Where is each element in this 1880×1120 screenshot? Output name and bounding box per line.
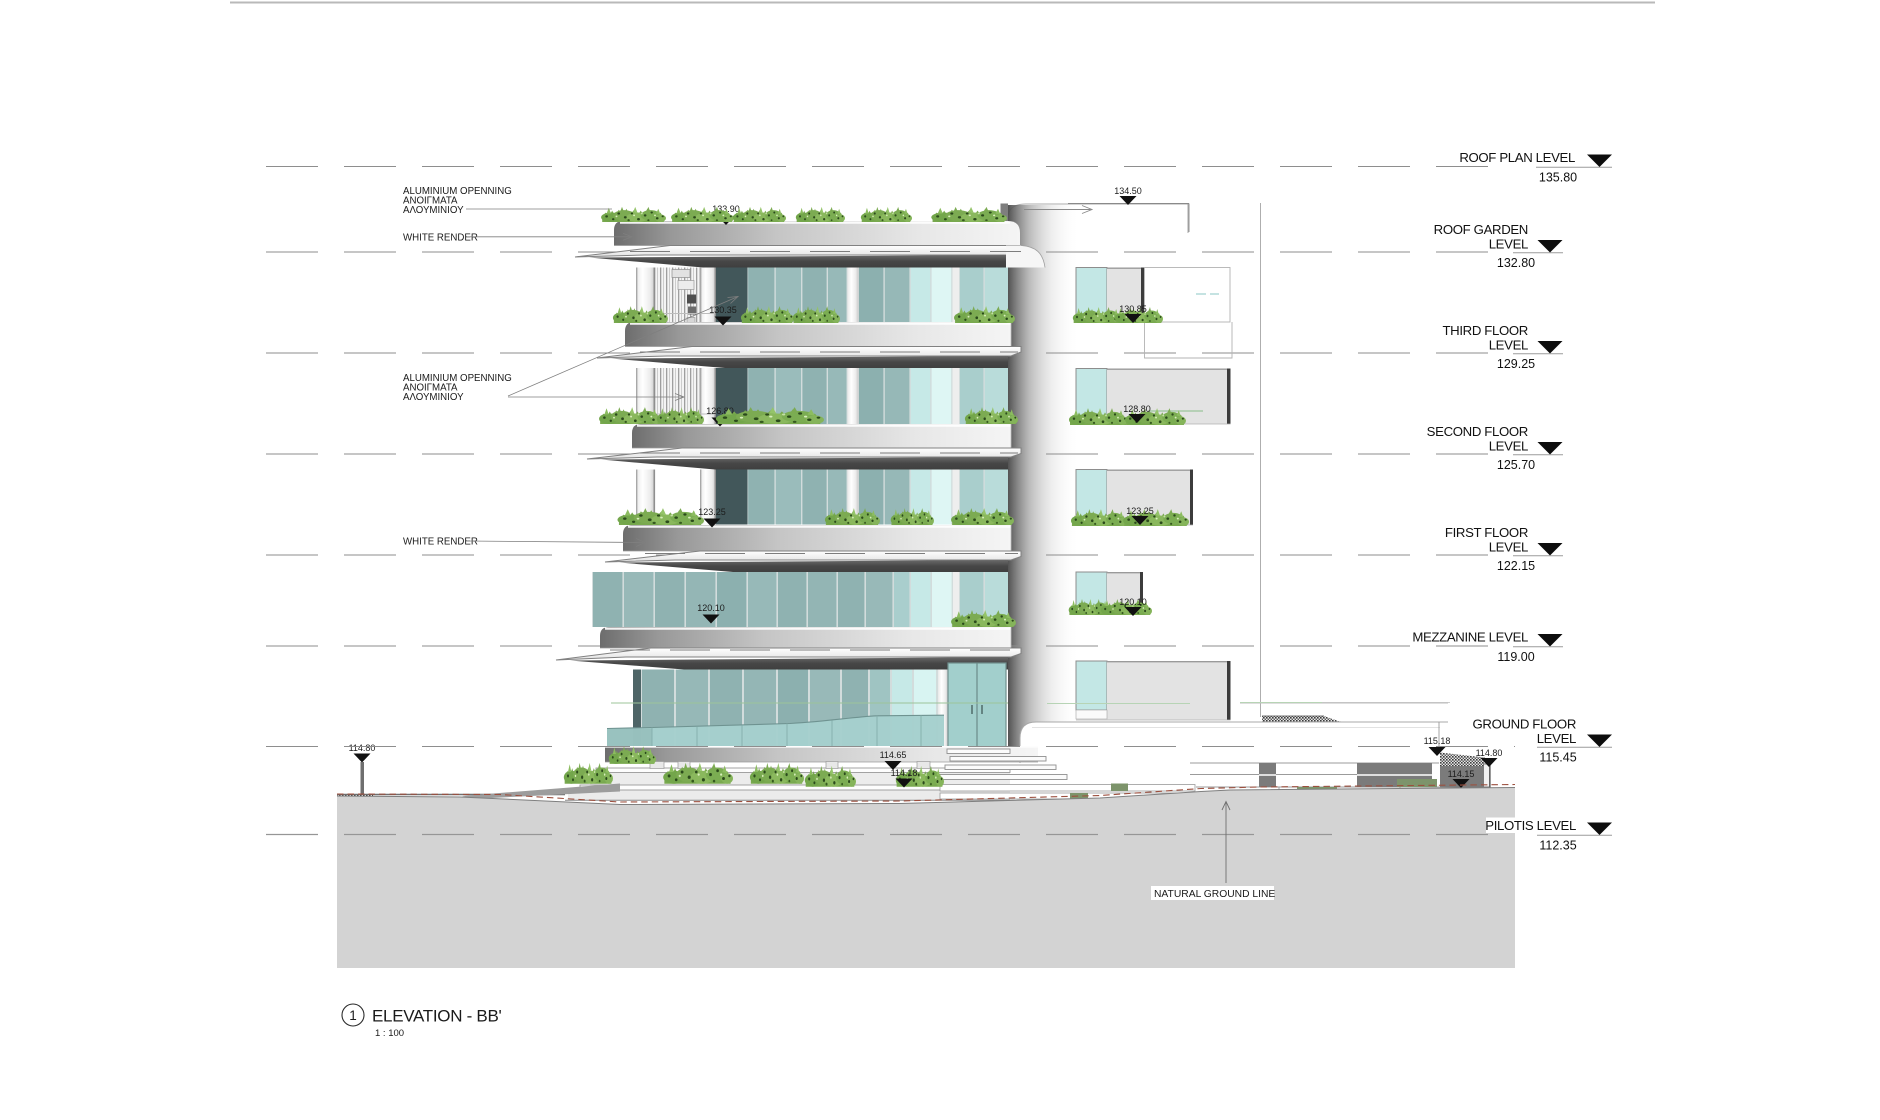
svg-text:114.80: 114.80 [349,743,376,753]
svg-text:119.00: 119.00 [1497,650,1534,664]
svg-text:134.50: 134.50 [1114,186,1142,196]
svg-text:130.85: 130.85 [1119,304,1147,314]
svg-text:114.80: 114.80 [1476,748,1503,758]
svg-text:122.15: 122.15 [1497,559,1535,573]
svg-text:LEVEL: LEVEL [1537,731,1576,746]
svg-text:ROOF PLAN LEVEL: ROOF PLAN LEVEL [1459,150,1575,165]
svg-text:PILOTIS LEVEL: PILOTIS LEVEL [1485,818,1576,833]
svg-text:123.25: 123.25 [698,507,726,517]
svg-text:135.80: 135.80 [1539,171,1577,185]
svg-text:1 : 100: 1 : 100 [375,1028,404,1039]
svg-text:1: 1 [349,1008,357,1023]
svg-text:132.80: 132.80 [1497,256,1535,270]
svg-text:ROOF GARDEN: ROOF GARDEN [1434,222,1528,237]
svg-text:130.35: 130.35 [709,305,737,315]
svg-text:128.80: 128.80 [1123,404,1151,414]
svg-text:SECOND FLOOR: SECOND FLOOR [1427,424,1528,439]
svg-text:120.10: 120.10 [1119,597,1147,607]
svg-text:115.45: 115.45 [1539,751,1576,765]
svg-text:125.70: 125.70 [1497,458,1535,472]
svg-text:LEVEL: LEVEL [1489,237,1528,252]
svg-text:THIRD FLOOR: THIRD FLOOR [1442,323,1528,338]
svg-text:129.25: 129.25 [1497,357,1535,371]
svg-text:WHITE RENDER: WHITE RENDER [403,537,478,548]
svg-text:MEZZANINE LEVEL: MEZZANINE LEVEL [1412,630,1528,645]
svg-text:123.25: 123.25 [1126,506,1154,516]
svg-text:LEVEL: LEVEL [1489,540,1528,555]
svg-text:114.65: 114.65 [880,750,907,760]
svg-text:120.10: 120.10 [697,603,725,613]
svg-text:FIRST FLOOR: FIRST FLOOR [1445,525,1528,540]
svg-text:114.15: 114.15 [1448,769,1475,779]
svg-text:115.18: 115.18 [1424,736,1451,746]
svg-text:GROUND FLOOR: GROUND FLOOR [1472,717,1576,732]
svg-text:LEVEL: LEVEL [1489,338,1528,353]
svg-text:LEVEL: LEVEL [1489,439,1528,454]
svg-text:112.35: 112.35 [1539,839,1576,853]
svg-text:ΑΛΟΥΜΙΝΙΟΥ: ΑΛΟΥΜΙΝΙΟΥ [403,392,464,403]
svg-text:NATURAL GROUND LINE: NATURAL GROUND LINE [1154,889,1275,900]
svg-text:ΑΛΟΥΜΙΝΙΟΥ: ΑΛΟΥΜΙΝΙΟΥ [403,205,464,216]
svg-text:ELEVATION - BB': ELEVATION - BB' [372,1007,501,1026]
svg-text:114.18: 114.18 [891,768,918,778]
svg-text:WHITE RENDER: WHITE RENDER [403,233,478,244]
